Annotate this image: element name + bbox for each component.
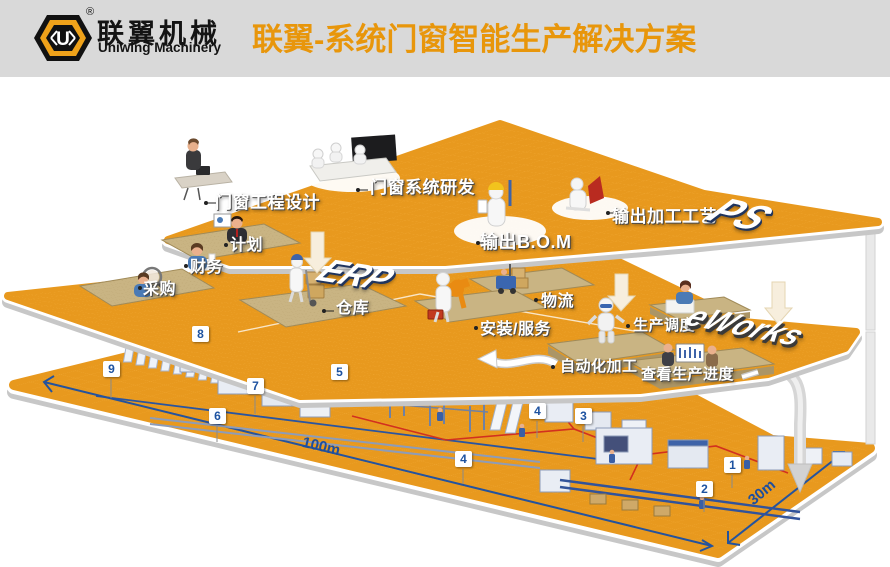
label-logistics: 物流 <box>541 287 574 311</box>
label-install-service: 安装/服务 <box>480 315 551 339</box>
support-pillars <box>866 230 875 444</box>
label-plan: 计划 <box>230 231 263 255</box>
badge-station-6: 6 <box>209 408 226 424</box>
badge-station-7: 7 <box>247 378 264 394</box>
badge-station-3: 3 <box>575 408 592 424</box>
badge-station-1: 1 <box>724 457 741 473</box>
label-automated-processing: 自动化加工 <box>560 355 638 376</box>
badge-station-8: 8 <box>192 326 209 342</box>
label-finance: 财务 <box>190 253 223 277</box>
badge-station-4b: 4 <box>455 451 472 467</box>
infographic-poster: U ® 联翼机械 Uniwing Machinery 联翼-系统门窗智能生产解决… <box>0 0 890 567</box>
badge-station-2: 2 <box>696 481 713 497</box>
label-view-progress: 查看生产进度 <box>641 363 734 384</box>
label-door-system-rnd: 门窗系统研发 <box>370 173 475 198</box>
label-warehouse: 仓库 <box>336 294 369 318</box>
brand-name-en: Uniwing Machinery <box>98 40 221 55</box>
badge-station-9: 9 <box>103 361 120 377</box>
badge-station-5: 5 <box>331 364 348 380</box>
page-title: 联翼-系统门窗智能生产解决方案 <box>252 14 696 59</box>
header-bar: U ® 联翼机械 Uniwing Machinery 联翼-系统门窗智能生产解决… <box>0 0 890 77</box>
badge-station-4a: 4 <box>529 403 546 419</box>
label-output-bom: 输出B.O.M <box>480 228 572 254</box>
label-purchase: 采购 <box>143 275 176 299</box>
logo-letter: U <box>56 29 70 50</box>
registered-mark: ® <box>86 6 94 18</box>
label-door-engineering-design: 门窗工程设计 <box>215 188 320 213</box>
isometric-scene <box>0 0 890 567</box>
